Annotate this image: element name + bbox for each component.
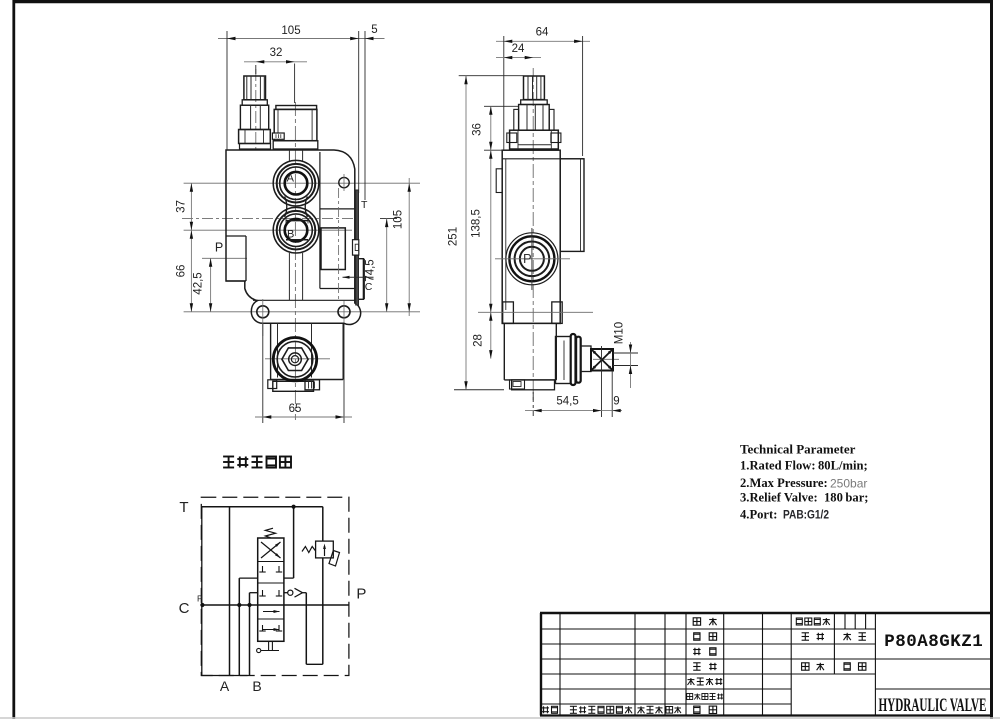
svg-text:PAB:G1/2: PAB:G1/2	[783, 510, 829, 522]
svg-text:105: 105	[393, 210, 405, 229]
svg-text:9: 9	[613, 396, 619, 408]
svg-text:1.Rated Flow:: 1.Rated Flow:	[740, 459, 816, 473]
svg-text:B: B	[252, 678, 261, 694]
svg-text:T: T	[361, 199, 368, 211]
svg-text:M10: M10	[614, 322, 626, 344]
svg-text:Technical Parameter: Technical Parameter	[740, 442, 856, 457]
svg-text:66: 66	[176, 265, 188, 278]
svg-text:P80A8GKZ1: P80A8GKZ1	[884, 632, 983, 652]
svg-text:P: P	[523, 251, 532, 266]
svg-text:3.Relief Valve:: 3.Relief Valve:	[740, 491, 818, 505]
svg-text:P: P	[215, 241, 223, 255]
svg-text:HYDRAULIC VALVE: HYDRAULIC VALVE	[879, 695, 987, 716]
svg-text:105: 105	[281, 25, 300, 37]
svg-text:36: 36	[471, 123, 483, 136]
svg-text:37: 37	[176, 200, 188, 213]
svg-text:24: 24	[512, 43, 525, 55]
svg-text:65: 65	[289, 403, 302, 415]
svg-text:250bar: 250bar	[830, 476, 867, 490]
svg-text:B: B	[287, 229, 294, 241]
svg-text:42,5: 42,5	[193, 272, 205, 294]
svg-text:C: C	[179, 600, 190, 617]
svg-text:80L/min;: 80L/min;	[818, 459, 868, 473]
svg-text:P: P	[197, 594, 203, 604]
svg-text:2.Max Pressure:: 2.Max Pressure:	[740, 476, 828, 490]
svg-text:54,5: 54,5	[556, 396, 578, 408]
svg-text:A: A	[287, 173, 295, 185]
svg-text:T: T	[179, 499, 188, 516]
svg-text:A: A	[220, 678, 230, 694]
svg-text:74,5: 74,5	[365, 259, 377, 281]
svg-text:251: 251	[448, 227, 460, 246]
svg-text:180 bar;: 180 bar;	[824, 491, 869, 505]
svg-text:32: 32	[270, 47, 283, 59]
svg-text:5: 5	[371, 24, 377, 36]
svg-text:28: 28	[472, 334, 484, 347]
svg-text:P: P	[356, 586, 366, 603]
svg-text:C: C	[365, 281, 373, 293]
svg-text:64: 64	[536, 27, 549, 39]
svg-text:4.Port:: 4.Port:	[740, 508, 777, 522]
svg-text:138,5: 138,5	[471, 209, 483, 238]
